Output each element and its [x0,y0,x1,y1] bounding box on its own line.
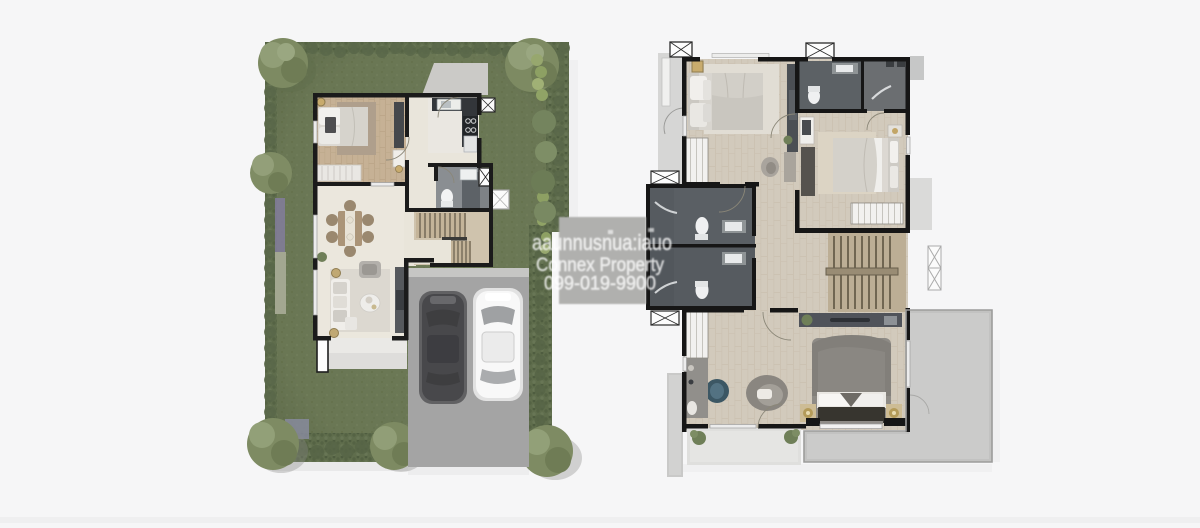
svg-text:099-019-9900: 099-019-9900 [544,274,656,295]
svg-text:aaunnusnua:iauo: aaunnusnua:iauo [532,230,672,255]
